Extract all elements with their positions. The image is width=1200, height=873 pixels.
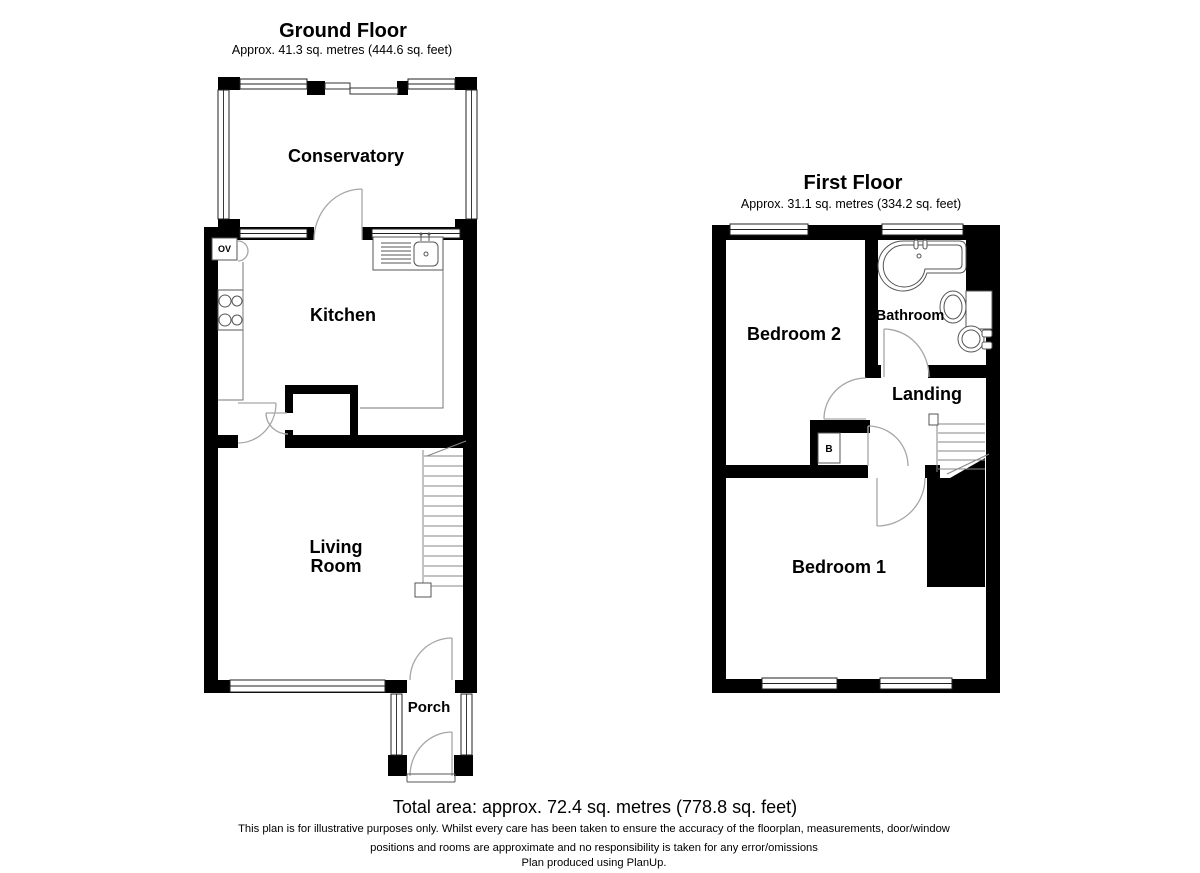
room-label-landing: Landing xyxy=(892,384,962,404)
first-floor-windows xyxy=(730,224,963,689)
oven-door-arc xyxy=(238,241,248,261)
kitchen-living-door xyxy=(238,403,276,443)
conservatory-glazing xyxy=(325,83,398,94)
conservatory-window-right xyxy=(466,90,477,219)
room-label-living-room-line1: Living xyxy=(310,537,363,557)
first-floor-plan: First Floor Approx. 31.1 sq. metres (334… xyxy=(712,172,1000,693)
bedroom1-window-left xyxy=(762,678,837,689)
ground-floor-doors xyxy=(238,189,455,782)
disclaimer-line2: positions and rooms are approximate and … xyxy=(370,842,818,854)
bedroom1-window-right xyxy=(880,678,952,689)
bedroom2-window xyxy=(730,224,808,235)
bathroom-door xyxy=(884,329,929,377)
porch-window-left xyxy=(391,694,402,755)
chimney-breast xyxy=(285,385,358,394)
room-label-conservatory: Conservatory xyxy=(288,146,404,166)
room-label-porch: Porch xyxy=(408,699,451,716)
footer: Total area: approx. 72.4 sq. metres (778… xyxy=(238,797,951,869)
disclaimer-line1: This plan is for illustrative purposes o… xyxy=(238,823,951,835)
first-floor-subtitle: Approx. 31.1 sq. metres (334.2 sq. feet) xyxy=(741,197,961,211)
boiler-cupboard: B xyxy=(818,433,840,463)
porch-window-right xyxy=(461,694,472,755)
porch-inner-door xyxy=(410,638,452,680)
bath xyxy=(878,240,966,291)
stair-newel-post xyxy=(415,583,431,597)
conservatory-window-top-right xyxy=(408,79,455,89)
conservatory-window-top-left xyxy=(240,79,307,89)
conservatory-doorway xyxy=(314,227,362,240)
ground-floor-title: Ground Floor xyxy=(279,20,407,42)
hob xyxy=(218,290,243,330)
porch-front-door xyxy=(410,732,452,776)
floorplan-page: Ground Floor Approx. 41.3 sq. metres (44… xyxy=(0,0,1200,873)
total-area-text: Total area: approx. 72.4 sq. metres (778… xyxy=(393,797,797,817)
bathroom-window xyxy=(882,224,963,235)
kitchen-counter-right xyxy=(360,270,443,408)
ground-floor-subtitle: Approx. 41.3 sq. metres (444.6 sq. feet) xyxy=(232,43,452,57)
ground-floor-windows xyxy=(218,79,477,755)
disclaimer-line3: Plan produced using PlanUp. xyxy=(522,857,667,869)
room-label-kitchen: Kitchen xyxy=(310,305,376,325)
room-label-bathroom: Bathroom xyxy=(876,308,944,324)
ground-floor-walls xyxy=(204,77,477,776)
ground-floor-plan: Ground Floor Approx. 41.3 sq. metres (44… xyxy=(204,20,477,782)
floorplan-canvas: Ground Floor Approx. 41.3 sq. metres (44… xyxy=(0,0,1200,873)
bedroom1-door xyxy=(877,478,925,526)
room-label-living-room-line2: Room xyxy=(311,556,362,576)
porch-doorway xyxy=(407,680,455,693)
toilet xyxy=(940,291,992,329)
boiler-label: B xyxy=(825,444,832,455)
kitchen-window-left xyxy=(240,229,307,238)
boiler-cupboard-door xyxy=(868,426,908,466)
room-label-bedroom1: Bedroom 1 xyxy=(792,557,886,577)
kitchen-counter-left xyxy=(218,262,243,400)
first-floor-title: First Floor xyxy=(804,172,903,194)
oven: OV xyxy=(212,238,248,261)
kitchen-sink xyxy=(373,233,443,271)
bedroom2-door xyxy=(824,378,866,419)
oven-label: OV xyxy=(218,244,231,254)
porch-threshold xyxy=(407,774,455,782)
stair-newel-post xyxy=(929,414,938,425)
room-label-bedroom2: Bedroom 2 xyxy=(747,324,841,344)
living-room-window xyxy=(230,680,385,692)
ground-floor-stairs xyxy=(415,441,466,597)
conservatory-window-left xyxy=(218,90,229,219)
chimney-cupboard-door xyxy=(266,413,288,434)
